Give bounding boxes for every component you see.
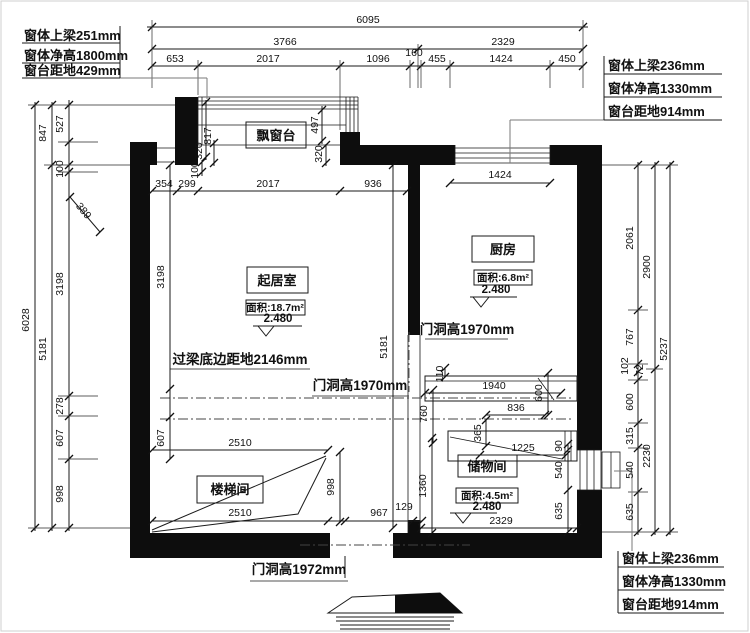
dimension-label: 6095: [356, 14, 380, 26]
dimension-label: 320: [193, 142, 205, 160]
dimension-label: 767: [624, 328, 636, 346]
dimension-label: 2230: [641, 444, 653, 468]
window-spec-line: 窗台距地429mm: [24, 63, 121, 78]
dimension-label: 6028: [20, 308, 32, 332]
window-spec-line: 窗体净高1330mm: [608, 81, 712, 96]
dimension-label: 315: [624, 427, 636, 445]
dimension-label: 1424: [488, 169, 512, 181]
level-symbol: [253, 326, 302, 336]
room-living: 起居室 面积:18.7m² 2.480: [246, 267, 308, 336]
dimension-label: 320: [313, 145, 325, 163]
door-height-kitchen: 门洞高1970mm: [420, 321, 515, 337]
dimension-label: 354: [155, 178, 173, 190]
dimension-label: 2510: [228, 437, 252, 449]
room-name: 厨房: [490, 242, 516, 257]
dimension-label: 72: [634, 364, 646, 376]
room-name: 楼梯间: [210, 482, 249, 497]
window-label-top-right: 窗体上梁236mm 窗体净高1330mm 窗台距地914mm: [604, 56, 722, 120]
level-symbol: [470, 297, 517, 307]
kitchen-window: [455, 145, 550, 165]
dimension-label: 110: [434, 365, 446, 382]
window-spec-line: 窗体净高1800mm: [24, 48, 128, 63]
roof-symbol: [328, 593, 462, 629]
window-spec-line: 窗体上梁236mm: [608, 58, 705, 73]
window-spec-line: 窗体净高1330mm: [622, 574, 726, 589]
dimension-label: 2017: [256, 53, 280, 65]
window-spec-line: 窗体上梁236mm: [622, 551, 719, 566]
door-height-living: 门洞高1970mm: [313, 377, 408, 393]
room-stairwell: 楼梯间: [197, 476, 263, 503]
room-name: 储物间: [466, 459, 506, 474]
dimension-label: 2510: [228, 507, 252, 519]
dimension-label: 998: [325, 478, 337, 496]
dimension-label: 299: [178, 178, 196, 190]
dimension-label: 100: [54, 160, 66, 178]
dimension-label: 847: [37, 124, 49, 142]
dimension-label: 3766: [273, 36, 297, 48]
floor-plan-canvas: 窗体上梁251mm 窗体净高1800mm 窗台距地429mm 窗体上梁236mm…: [0, 0, 750, 633]
dimension-label: 450: [558, 53, 576, 65]
dimension-label: 2017: [256, 178, 280, 190]
dimension-text-layer: 6095376623296532017109616045514244508475…: [20, 14, 670, 527]
window-spec-line: 窗体上梁251mm: [24, 28, 121, 43]
dimension-label: 365: [472, 424, 484, 442]
window-label-bottom-right: 窗体上梁236mm 窗体净高1330mm 窗台距地914mm: [618, 551, 726, 613]
dimension-label: 600: [624, 393, 636, 411]
room-kitchen: 厨房 面积:6.8m² 2.480: [470, 236, 534, 307]
dimension-label: 936: [364, 178, 382, 190]
dimension-label: 497: [309, 116, 321, 134]
door-height-bottom: 门洞高1972mm: [252, 561, 347, 577]
dimension-label: 817: [202, 127, 214, 145]
room-level: 2.480: [482, 284, 511, 296]
dimension-label: 653: [166, 53, 184, 65]
dimension-label: 607: [54, 429, 66, 447]
dimension-label: 1940: [482, 380, 506, 392]
dimension-label: 129: [395, 501, 413, 513]
dimension-label: 5181: [37, 337, 49, 361]
window-label-top-left: 窗体上梁251mm 窗体净高1800mm 窗台距地429mm: [22, 26, 128, 78]
dimension-label: 90: [553, 440, 565, 452]
dimension-label: 1225: [511, 442, 535, 454]
dimension-label: 1360: [417, 474, 429, 498]
dimension-label: 100: [189, 161, 201, 179]
dimension-label: 1096: [366, 53, 390, 65]
dimension-label: 998: [54, 485, 66, 503]
dimension-label: 540: [624, 461, 636, 479]
dimension-label: 160: [405, 47, 423, 59]
dimension-label: 2329: [491, 36, 515, 48]
room-name: 起居室: [256, 273, 296, 288]
dimension-label: 2329: [489, 515, 513, 527]
dimension-label: 836: [507, 402, 525, 414]
dimension-label: 2061: [624, 226, 636, 250]
dimension-label: 102: [619, 357, 631, 375]
dimension-label: 3198: [54, 272, 66, 296]
dimension-label: 1424: [489, 53, 513, 65]
room-bay-window: 飘窗台: [246, 122, 306, 148]
dimension-label: 527: [54, 115, 66, 133]
dimension-label: 967: [370, 507, 388, 519]
window-spec-line: 窗台距地914mm: [608, 104, 705, 119]
room-area: 面积:6.8m²: [477, 271, 529, 284]
dimension-label: 5237: [658, 337, 670, 361]
room-name: 飘窗台: [256, 128, 295, 143]
window-spec-line: 窗台距地914mm: [622, 597, 719, 612]
room-level: 2.480: [473, 501, 502, 513]
dimension-label: 760: [418, 405, 430, 423]
room-storage: 储物间 面积:4.5m² 2.480: [450, 455, 518, 523]
dimension-label: 600: [533, 384, 545, 402]
dimension-label: 2900: [641, 255, 653, 279]
dimension-label: 3198: [155, 265, 167, 289]
storage-window: [577, 450, 620, 490]
dimension-label: 635: [624, 503, 636, 521]
dimension-label: 540: [553, 461, 565, 479]
dimension-label: 455: [428, 53, 446, 65]
dimension-label: 635: [553, 502, 565, 520]
dimension-label: 607: [155, 429, 167, 447]
room-level: 2.480: [264, 313, 293, 325]
dimension-label: 5181: [378, 335, 390, 359]
lintel-note: 过梁底边距地2146mm: [172, 351, 307, 367]
floor-plan-drawing: 窗体上梁251mm 窗体净高1800mm 窗台距地429mm 窗体上梁236mm…: [0, 0, 750, 633]
dimension-label: 278: [54, 397, 66, 415]
